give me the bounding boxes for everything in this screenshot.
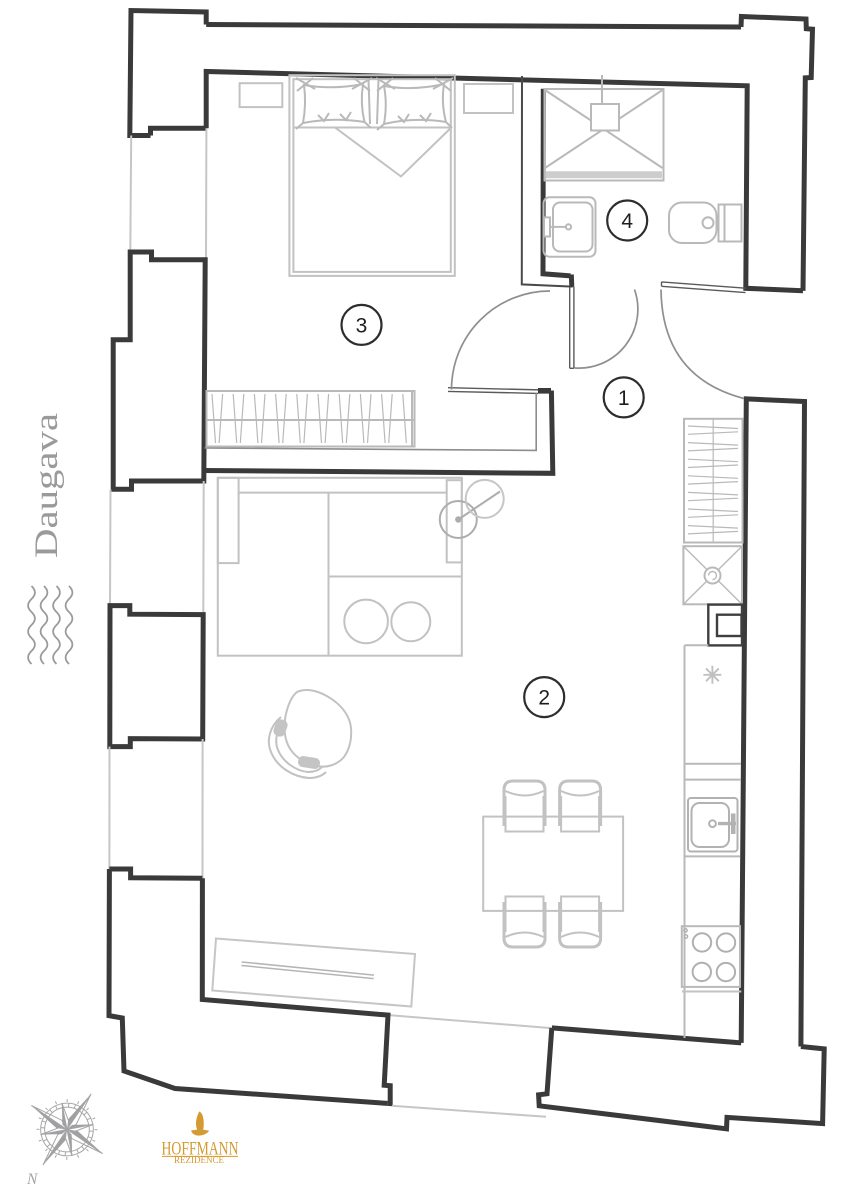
svg-text:Daugava: Daugava [29, 413, 65, 558]
svg-text:4: 4 [621, 210, 633, 233]
svg-text:2: 2 [538, 687, 550, 710]
svg-text:REZIDENCE: REZIDENCE [174, 1155, 224, 1165]
svg-text:1: 1 [618, 387, 630, 410]
svg-text:N: N [26, 1171, 39, 1188]
svg-text:3: 3 [356, 314, 368, 337]
